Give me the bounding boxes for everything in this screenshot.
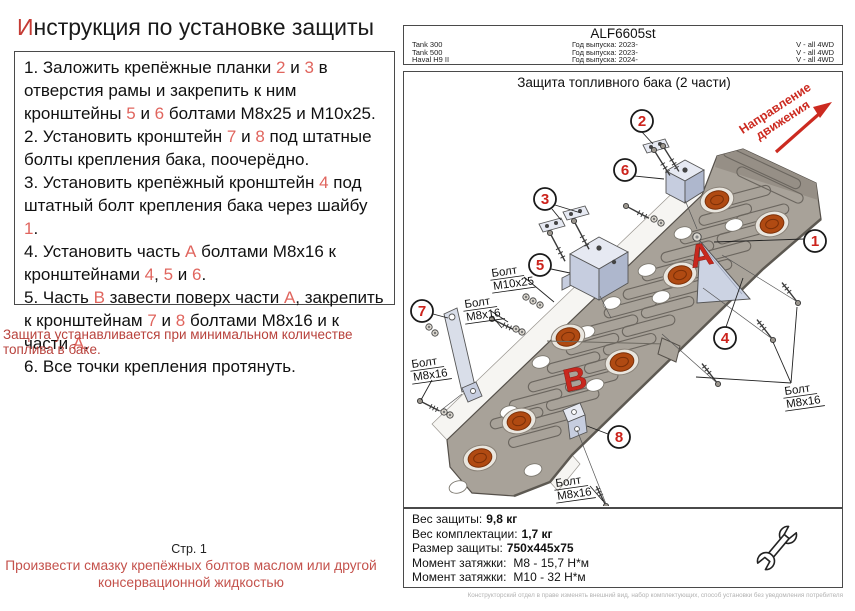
vehicle-drive: V - all 4WD <box>770 56 834 64</box>
svg-text:7: 7 <box>418 303 426 320</box>
skid-plate <box>447 149 821 496</box>
exploded-diagram: Защита топливного бака (2 части) Направл… <box>404 72 841 506</box>
callout-4: 4 <box>714 327 736 349</box>
diagram-title: Защита топливного бака (2 части) <box>517 75 731 90</box>
bolt-label-m8x16-right: БолтМ8х16 <box>782 381 825 411</box>
disclaimer-text: Конструкторский отдел в праве изменять в… <box>403 592 843 599</box>
svg-text:8: 8 <box>615 429 623 446</box>
svg-text:1: 1 <box>811 233 819 250</box>
instruction-step-4: 4. Установить часть А болтами М8х16 к кр… <box>24 240 385 286</box>
direction-of-travel: Направление движения <box>737 80 832 152</box>
fuel-level-warning: Защита устанавливается при минимальном к… <box>3 327 405 357</box>
wrench-icon <box>746 511 808 585</box>
callout-7: 7 <box>411 300 433 322</box>
instruction-step-6: 6. Все точки крепления протянуть. <box>24 355 385 378</box>
strip-3a <box>539 218 565 232</box>
instruction-step-3: 3. Установить крепёжный кронштейн 4 под … <box>24 171 385 240</box>
vehicle-table: ALF6605st Tank 300Год выпуска: 2023-V - … <box>403 25 843 65</box>
vehicle-model: Haval H9 II <box>412 56 572 64</box>
callout-2: 2 <box>631 110 653 132</box>
svg-text:5: 5 <box>536 257 544 274</box>
svg-text:4: 4 <box>721 330 730 347</box>
part-code: ALF6605st <box>404 26 842 41</box>
bolt-label-m8x16-left: БолтМ8х16 <box>409 354 452 384</box>
callout-6: 6 <box>614 159 636 181</box>
vehicle-year: Год выпуска: 2024- <box>572 56 770 64</box>
instruction-step-1: 1. Заложить крепёжные планки 2 и 3 в отв… <box>24 56 385 125</box>
spec-table: Вес защиты:9,8 кгВес комплектации:1,7 кг… <box>403 508 843 588</box>
svg-text:2: 2 <box>638 113 646 130</box>
callout-5: 5 <box>529 254 551 276</box>
instruction-sheet: Инструкция по установке защиты 1. Заложи… <box>0 0 855 611</box>
page-number: Стр. 1 <box>0 542 378 556</box>
lubrication-note: Произвести смазку крепёжных болтов масло… <box>5 557 377 591</box>
page-title: Инструкция по установке защиты <box>17 14 374 41</box>
svg-text:6: 6 <box>621 162 629 179</box>
title-rest: нструкция по установке защиты <box>34 14 375 40</box>
instruction-step-2: 2. Установить кронштейн 7 и 8 под штатны… <box>24 125 385 171</box>
diagram-box: Защита топливного бака (2 части) Направл… <box>403 71 843 508</box>
strip-3b <box>563 206 589 220</box>
callout-1: 1 <box>804 230 826 252</box>
bolt-label-m8x16-bottom: БолтМ8х16 <box>553 473 596 503</box>
instructions-box: 1. Заложить крепёжные планки 2 и 3 в отв… <box>14 51 395 305</box>
title-first-letter: И <box>17 14 34 40</box>
callout-8: 8 <box>608 426 630 448</box>
svg-text:3: 3 <box>541 191 549 208</box>
vehicle-row-3: Haval H9 IIГод выпуска: 2024-V - all 4WD <box>404 56 842 64</box>
bolt-label-m8x16-mid: БолтМ8х16 <box>462 294 505 324</box>
callout-3: 3 <box>534 188 556 210</box>
